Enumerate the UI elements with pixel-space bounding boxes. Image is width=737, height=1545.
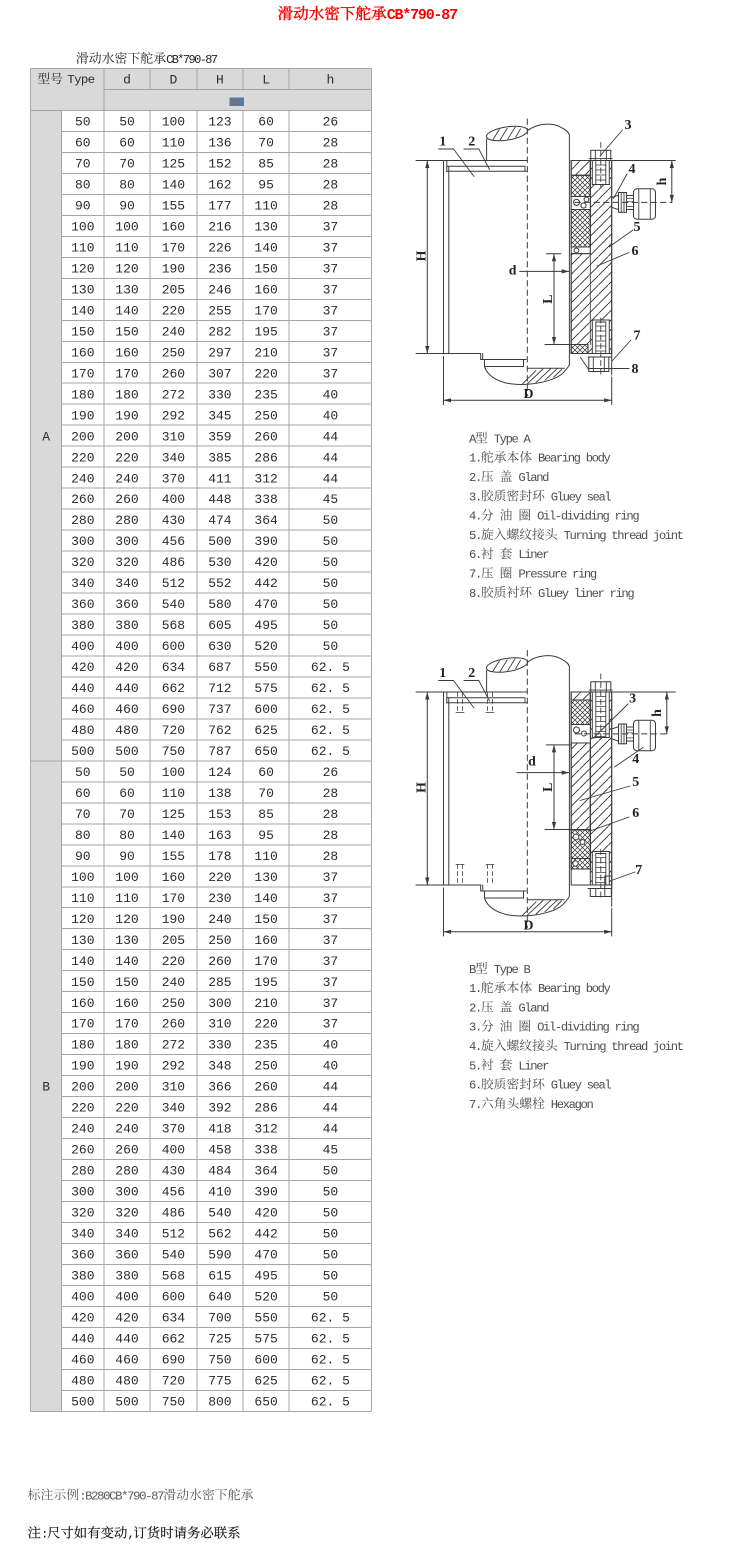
svg-text:540: 540 xyxy=(162,597,185,612)
svg-text:320: 320 xyxy=(71,555,94,570)
svg-text:40: 40 xyxy=(323,1038,339,1053)
svg-text:360: 360 xyxy=(115,597,138,612)
svg-text:486: 486 xyxy=(162,1206,185,1221)
svg-text:110: 110 xyxy=(254,849,277,864)
svg-text:260: 260 xyxy=(162,366,185,381)
svg-text:500: 500 xyxy=(71,744,94,759)
svg-text:190: 190 xyxy=(115,1059,138,1074)
svg-text:140: 140 xyxy=(71,303,94,318)
svg-text:320: 320 xyxy=(71,1206,94,1221)
svg-text:body: body xyxy=(586,452,611,466)
svg-text:6: 6 xyxy=(632,806,639,821)
svg-text:235: 235 xyxy=(254,387,277,402)
svg-text::: : xyxy=(41,1528,47,1542)
svg-text:140: 140 xyxy=(254,891,277,906)
svg-text:286: 286 xyxy=(254,450,277,465)
svg-text:292: 292 xyxy=(162,1059,185,1074)
svg-text:163: 163 xyxy=(208,828,231,843)
svg-text:body: body xyxy=(586,982,611,996)
svg-text:292: 292 xyxy=(162,408,185,423)
svg-text:520: 520 xyxy=(254,1289,277,1304)
svg-text:62. 5: 62. 5 xyxy=(311,1373,350,1388)
svg-text:155: 155 xyxy=(162,199,185,214)
svg-text:640: 640 xyxy=(208,1289,231,1304)
svg-text:H: H xyxy=(414,782,429,793)
svg-text:260: 260 xyxy=(208,954,231,969)
svg-text:260: 260 xyxy=(115,492,138,507)
svg-text:CB*790-87: CB*790-87 xyxy=(387,7,457,24)
svg-text:340: 340 xyxy=(71,1227,94,1242)
svg-text:180: 180 xyxy=(71,1038,94,1053)
svg-text:124: 124 xyxy=(208,765,232,780)
svg-text:280: 280 xyxy=(115,1164,138,1179)
svg-text:150: 150 xyxy=(254,261,277,276)
svg-text:joint: joint xyxy=(653,529,684,543)
svg-text:110: 110 xyxy=(115,891,138,906)
svg-text:140: 140 xyxy=(115,954,138,969)
svg-text:310: 310 xyxy=(162,429,185,444)
svg-text:200: 200 xyxy=(71,429,94,444)
svg-text:50: 50 xyxy=(323,1248,339,1263)
svg-text:d: d xyxy=(528,754,536,769)
svg-text:130: 130 xyxy=(71,282,94,297)
svg-text:568: 568 xyxy=(162,1268,185,1283)
svg-text:153: 153 xyxy=(208,807,231,822)
svg-text::B280CB*790-87: :B280CB*790-87 xyxy=(79,1489,164,1503)
svg-text:44: 44 xyxy=(323,429,339,444)
svg-text:250: 250 xyxy=(162,345,185,360)
svg-text:40: 40 xyxy=(323,1059,339,1074)
svg-text:240: 240 xyxy=(162,324,185,339)
svg-text:160: 160 xyxy=(162,870,185,885)
svg-text:ring: ring xyxy=(615,510,640,524)
svg-text:750: 750 xyxy=(162,744,185,759)
svg-text:28: 28 xyxy=(323,786,339,801)
svg-text:62. 5: 62. 5 xyxy=(311,702,350,717)
svg-text:160: 160 xyxy=(254,933,277,948)
svg-text:70: 70 xyxy=(258,786,274,801)
svg-text:400: 400 xyxy=(162,1143,185,1158)
svg-text:220: 220 xyxy=(254,1017,277,1032)
svg-text:6.: 6. xyxy=(469,548,481,562)
svg-text:390: 390 xyxy=(254,1185,277,1200)
svg-text:37: 37 xyxy=(323,261,339,276)
svg-text:Gland: Gland xyxy=(518,1001,549,1015)
svg-text:442: 442 xyxy=(254,576,277,591)
svg-text:550: 550 xyxy=(254,1310,277,1325)
svg-text:240: 240 xyxy=(71,1122,94,1137)
svg-text:280: 280 xyxy=(71,1164,94,1179)
svg-text:512: 512 xyxy=(162,576,185,591)
svg-text:100: 100 xyxy=(71,870,94,885)
svg-text:50: 50 xyxy=(323,555,339,570)
svg-text:190: 190 xyxy=(71,408,94,423)
svg-text:456: 456 xyxy=(162,534,185,549)
svg-text:50: 50 xyxy=(323,1206,339,1221)
svg-text:80: 80 xyxy=(75,178,91,193)
svg-text:ring: ring xyxy=(615,1021,640,1035)
svg-text:430: 430 xyxy=(162,513,185,528)
svg-text:255: 255 xyxy=(208,303,231,318)
svg-text:540: 540 xyxy=(162,1248,185,1263)
svg-text:Liner: Liner xyxy=(518,548,549,562)
svg-text:320: 320 xyxy=(115,555,138,570)
svg-text:152: 152 xyxy=(208,157,231,172)
svg-text:480: 480 xyxy=(71,723,94,738)
svg-text:190: 190 xyxy=(162,912,185,927)
svg-text:240: 240 xyxy=(115,1122,138,1137)
svg-text:150: 150 xyxy=(71,975,94,990)
svg-text:575: 575 xyxy=(254,1331,277,1346)
svg-text:mm: mm xyxy=(231,98,242,108)
svg-text:250: 250 xyxy=(254,1059,277,1074)
svg-text:50: 50 xyxy=(323,1227,339,1242)
svg-text:90: 90 xyxy=(119,199,135,214)
svg-text:62. 5: 62. 5 xyxy=(311,1310,350,1325)
svg-text:3: 3 xyxy=(629,692,636,707)
svg-text:240: 240 xyxy=(71,471,94,486)
svg-text:330: 330 xyxy=(208,387,231,402)
svg-text:600: 600 xyxy=(254,702,277,717)
svg-text:720: 720 xyxy=(162,1373,185,1388)
svg-text:h: h xyxy=(654,177,669,185)
svg-text:562: 562 xyxy=(208,1227,231,1242)
svg-text:170: 170 xyxy=(115,366,138,381)
svg-text:136: 136 xyxy=(208,136,231,151)
svg-text:B: B xyxy=(42,1080,50,1095)
svg-text:ring: ring xyxy=(610,587,635,601)
svg-text:44: 44 xyxy=(323,471,339,486)
svg-text:110: 110 xyxy=(162,136,185,151)
svg-text:250: 250 xyxy=(254,408,277,423)
svg-text:26: 26 xyxy=(323,765,339,780)
svg-text:1: 1 xyxy=(439,666,446,681)
svg-text:110: 110 xyxy=(254,199,277,214)
svg-text:170: 170 xyxy=(162,891,185,906)
svg-text:787: 787 xyxy=(208,744,231,759)
svg-text:345: 345 xyxy=(208,408,231,423)
svg-text:272: 272 xyxy=(162,1038,185,1053)
svg-text:60: 60 xyxy=(119,136,135,151)
svg-text:340: 340 xyxy=(71,576,94,591)
svg-text:50: 50 xyxy=(75,765,91,780)
svg-text:130: 130 xyxy=(254,870,277,885)
svg-text:630: 630 xyxy=(208,639,231,654)
svg-text:Type: Type xyxy=(494,432,519,446)
svg-text:62. 5: 62. 5 xyxy=(311,681,350,696)
svg-text:7.: 7. xyxy=(469,1098,481,1112)
svg-text:470: 470 xyxy=(254,597,277,612)
svg-text:160: 160 xyxy=(115,345,138,360)
svg-text:160: 160 xyxy=(115,996,138,1011)
svg-text:456: 456 xyxy=(162,1185,185,1200)
svg-text:28: 28 xyxy=(323,157,339,172)
svg-text:282: 282 xyxy=(208,324,231,339)
svg-text:70: 70 xyxy=(258,136,274,151)
svg-text:50: 50 xyxy=(323,597,339,612)
svg-text:625: 625 xyxy=(254,1373,277,1388)
svg-text:460: 460 xyxy=(71,702,94,717)
svg-text:thread: thread xyxy=(611,529,648,543)
svg-text:62. 5: 62. 5 xyxy=(311,723,350,738)
svg-text:Oil-dividing: Oil-dividing xyxy=(537,1021,609,1035)
svg-text:40: 40 xyxy=(323,408,339,423)
svg-text:205: 205 xyxy=(162,282,185,297)
svg-text:260: 260 xyxy=(71,1143,94,1158)
svg-text:360: 360 xyxy=(71,1248,94,1263)
svg-text:1: 1 xyxy=(439,134,446,149)
svg-text:420: 420 xyxy=(254,1206,277,1221)
svg-text:50: 50 xyxy=(323,513,339,528)
svg-text:4.: 4. xyxy=(469,1040,481,1054)
svg-text:280: 280 xyxy=(71,513,94,528)
svg-text:550: 550 xyxy=(254,660,277,675)
svg-text:190: 190 xyxy=(115,408,138,423)
svg-text:A: A xyxy=(42,429,50,444)
svg-text:420: 420 xyxy=(115,1310,138,1325)
svg-text:300: 300 xyxy=(71,534,94,549)
svg-text:2: 2 xyxy=(468,134,475,149)
svg-text:285: 285 xyxy=(208,975,231,990)
svg-text:60: 60 xyxy=(258,115,274,130)
svg-text:340: 340 xyxy=(115,1227,138,1242)
svg-text:37: 37 xyxy=(323,933,339,948)
svg-text:220: 220 xyxy=(162,954,185,969)
svg-text:37: 37 xyxy=(323,975,339,990)
svg-text:420: 420 xyxy=(115,660,138,675)
svg-text:634: 634 xyxy=(162,660,186,675)
svg-text:236: 236 xyxy=(208,261,231,276)
svg-text:220: 220 xyxy=(115,450,138,465)
svg-text:520: 520 xyxy=(254,639,277,654)
svg-text:h: h xyxy=(326,73,334,88)
svg-text:D: D xyxy=(524,918,534,933)
svg-text:95: 95 xyxy=(258,828,274,843)
svg-text:220: 220 xyxy=(208,870,231,885)
svg-text:5.: 5. xyxy=(469,1059,481,1073)
svg-text:44: 44 xyxy=(323,1101,339,1116)
svg-text:A: A xyxy=(524,432,532,446)
svg-text:625: 625 xyxy=(254,723,277,738)
svg-text:3.: 3. xyxy=(469,1021,481,1035)
svg-text:D: D xyxy=(169,73,177,88)
svg-text:170: 170 xyxy=(254,954,277,969)
svg-text:500: 500 xyxy=(208,534,231,549)
svg-text:260: 260 xyxy=(254,1080,277,1095)
svg-text:100: 100 xyxy=(115,870,138,885)
svg-text:280: 280 xyxy=(115,513,138,528)
svg-text:390: 390 xyxy=(254,534,277,549)
svg-text:4: 4 xyxy=(629,162,636,177)
svg-text:178: 178 xyxy=(208,849,231,864)
svg-text:300: 300 xyxy=(115,1185,138,1200)
svg-text:Pressure: Pressure xyxy=(518,568,567,582)
svg-text:130: 130 xyxy=(71,933,94,948)
svg-text:720: 720 xyxy=(162,723,185,738)
svg-text:200: 200 xyxy=(115,429,138,444)
svg-text:37: 37 xyxy=(323,219,339,234)
svg-text:195: 195 xyxy=(254,975,277,990)
svg-text:160: 160 xyxy=(162,219,185,234)
svg-text:50: 50 xyxy=(323,1164,339,1179)
svg-text:1.: 1. xyxy=(469,452,481,466)
svg-text:28: 28 xyxy=(323,178,339,193)
svg-text:45: 45 xyxy=(323,492,339,507)
svg-text:60: 60 xyxy=(258,765,274,780)
svg-text:500: 500 xyxy=(71,1394,94,1409)
svg-text:2.: 2. xyxy=(469,1001,481,1015)
svg-text:484: 484 xyxy=(208,1164,232,1179)
svg-text:100: 100 xyxy=(115,219,138,234)
svg-text:70: 70 xyxy=(119,157,135,172)
svg-text:62. 5: 62. 5 xyxy=(311,1352,350,1367)
svg-text:50: 50 xyxy=(323,1268,339,1283)
svg-text:480: 480 xyxy=(115,1373,138,1388)
svg-text:380: 380 xyxy=(115,618,138,633)
svg-text:725: 725 xyxy=(208,1331,231,1346)
svg-text:385: 385 xyxy=(208,450,231,465)
svg-text:4.: 4. xyxy=(469,510,481,524)
svg-text:310: 310 xyxy=(162,1080,185,1095)
svg-text:H: H xyxy=(414,250,429,261)
svg-text:600: 600 xyxy=(162,639,185,654)
svg-text:400: 400 xyxy=(115,1289,138,1304)
svg-text:250: 250 xyxy=(162,996,185,1011)
svg-text:155: 155 xyxy=(162,849,185,864)
svg-text:90: 90 xyxy=(75,849,91,864)
svg-text:150: 150 xyxy=(115,975,138,990)
svg-text:246: 246 xyxy=(208,282,231,297)
svg-text:80: 80 xyxy=(119,828,135,843)
svg-text:62. 5: 62. 5 xyxy=(311,1394,350,1409)
svg-text:8.: 8. xyxy=(469,587,481,601)
svg-text:Turning: Turning xyxy=(564,529,607,543)
svg-text:80: 80 xyxy=(75,828,91,843)
svg-text:420: 420 xyxy=(71,660,94,675)
svg-text:460: 460 xyxy=(71,1352,94,1367)
svg-text:480: 480 xyxy=(71,1373,94,1388)
svg-text:300: 300 xyxy=(115,534,138,549)
svg-text:272: 272 xyxy=(162,387,185,402)
svg-text:120: 120 xyxy=(71,261,94,276)
svg-text:286: 286 xyxy=(254,1101,277,1116)
svg-text:50: 50 xyxy=(323,1289,339,1304)
svg-text:8: 8 xyxy=(632,362,639,377)
svg-text:6.: 6. xyxy=(469,1079,481,1093)
svg-text:50: 50 xyxy=(323,639,339,654)
svg-text:690: 690 xyxy=(162,702,185,717)
svg-text:3: 3 xyxy=(625,118,632,133)
svg-text:2.: 2. xyxy=(469,471,481,485)
svg-text:600: 600 xyxy=(162,1289,185,1304)
svg-text:150: 150 xyxy=(71,324,94,339)
svg-text:thread: thread xyxy=(611,1040,648,1054)
svg-text:235: 235 xyxy=(254,1038,277,1053)
svg-text:95: 95 xyxy=(258,178,274,193)
svg-text:28: 28 xyxy=(323,199,339,214)
svg-text:7: 7 xyxy=(635,863,642,878)
svg-text:100: 100 xyxy=(162,765,185,780)
svg-text:220: 220 xyxy=(162,303,185,318)
svg-text:6: 6 xyxy=(632,244,639,259)
svg-text:140: 140 xyxy=(162,178,185,193)
svg-text:470: 470 xyxy=(254,1248,277,1263)
svg-text:300: 300 xyxy=(71,1185,94,1200)
svg-text:700: 700 xyxy=(208,1310,231,1325)
svg-text:140: 140 xyxy=(115,303,138,318)
svg-text:340: 340 xyxy=(162,1101,185,1116)
svg-text:500: 500 xyxy=(115,1394,138,1409)
svg-text:37: 37 xyxy=(323,345,339,360)
svg-text:250: 250 xyxy=(208,933,231,948)
svg-text:370: 370 xyxy=(162,471,185,486)
svg-text:60: 60 xyxy=(75,786,91,801)
svg-text:380: 380 xyxy=(115,1268,138,1283)
svg-text:130: 130 xyxy=(115,282,138,297)
svg-text:460: 460 xyxy=(115,1352,138,1367)
svg-text:L: L xyxy=(540,294,555,303)
svg-text:90: 90 xyxy=(119,849,135,864)
svg-text:634: 634 xyxy=(162,1310,186,1325)
svg-text:359: 359 xyxy=(208,429,231,444)
svg-text:162: 162 xyxy=(208,178,231,193)
svg-text:50: 50 xyxy=(323,534,339,549)
svg-text:150: 150 xyxy=(115,324,138,339)
svg-text:650: 650 xyxy=(254,1394,277,1409)
svg-text:495: 495 xyxy=(254,618,277,633)
svg-text:190: 190 xyxy=(71,1059,94,1074)
svg-text:180: 180 xyxy=(71,387,94,402)
svg-text:Gland: Gland xyxy=(518,471,549,485)
svg-text:400: 400 xyxy=(115,639,138,654)
svg-text:37: 37 xyxy=(323,366,339,381)
svg-text:50: 50 xyxy=(323,1185,339,1200)
svg-text:430: 430 xyxy=(162,1164,185,1179)
svg-text:220: 220 xyxy=(115,1101,138,1116)
svg-text:615: 615 xyxy=(208,1268,231,1283)
svg-text:70: 70 xyxy=(75,807,91,822)
svg-text:338: 338 xyxy=(254,492,277,507)
svg-text:364: 364 xyxy=(254,1164,278,1179)
svg-text:50: 50 xyxy=(323,576,339,591)
svg-text:37: 37 xyxy=(323,912,339,927)
svg-text:170: 170 xyxy=(254,303,277,318)
svg-text:125: 125 xyxy=(162,157,185,172)
svg-text:70: 70 xyxy=(119,807,135,822)
svg-text:37: 37 xyxy=(323,282,339,297)
svg-text:44: 44 xyxy=(323,450,339,465)
svg-text:110: 110 xyxy=(71,891,94,906)
svg-text:CB*790-87: CB*790-87 xyxy=(166,53,218,67)
svg-text:712: 712 xyxy=(208,681,231,696)
svg-text:330: 330 xyxy=(208,1038,231,1053)
svg-text:205: 205 xyxy=(162,933,185,948)
svg-text:90: 90 xyxy=(75,199,91,214)
svg-text:590: 590 xyxy=(208,1248,231,1263)
svg-text:62. 5: 62. 5 xyxy=(311,1331,350,1346)
svg-text:Gluey: Gluey xyxy=(538,587,569,601)
svg-text:312: 312 xyxy=(254,1122,277,1137)
svg-text:D: D xyxy=(524,386,534,401)
svg-text:512: 512 xyxy=(162,1227,185,1242)
svg-text:220: 220 xyxy=(71,1101,94,1116)
svg-text:320: 320 xyxy=(115,1206,138,1221)
svg-text:690: 690 xyxy=(162,1352,185,1367)
svg-text:d: d xyxy=(509,262,517,277)
svg-text:737: 737 xyxy=(208,702,231,717)
svg-text:200: 200 xyxy=(115,1080,138,1095)
svg-text:62. 5: 62. 5 xyxy=(311,660,350,675)
